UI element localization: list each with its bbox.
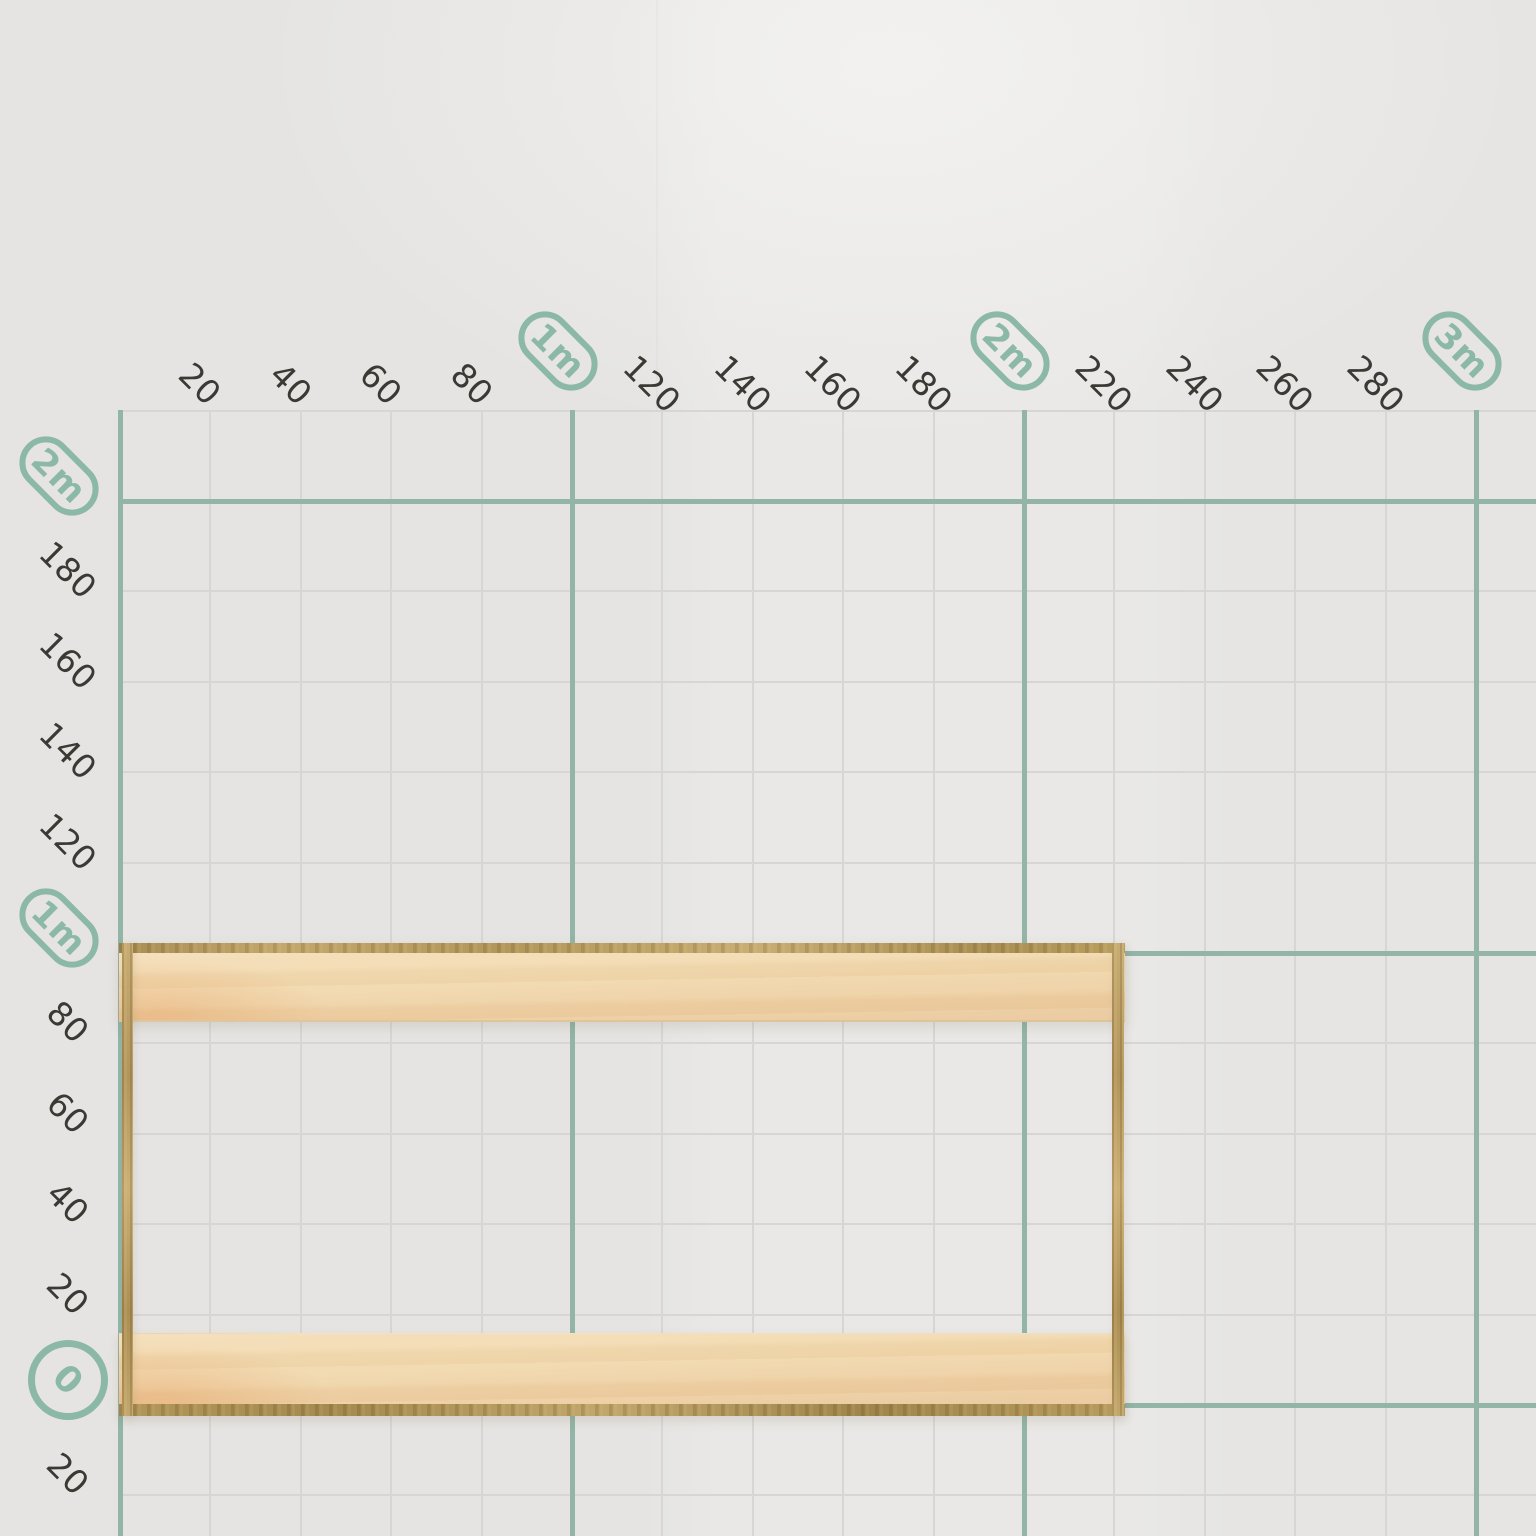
top-axis-label-300cm: 3m [1411,300,1512,401]
left-axis-label-100cm: 1m [8,877,109,978]
grid-line-y-160cm [120,681,1536,683]
left-axis-label-120cm: 120 [34,807,103,876]
top-axis-label-40cm: 40 [264,357,318,411]
left-axis-label-60cm: 60 [41,1086,95,1140]
top-axis-label-200cm: 2m [959,300,1060,401]
wood-top-plank[interactable] [119,943,1125,1022]
wall-seam [656,0,658,410]
left-axis-label-minus20cm: 20 [41,1448,95,1502]
wood-bottom-plank[interactable] [119,1333,1125,1416]
build-scene: 204060801m1201401601802m2202402602803m2m… [0,0,1536,1536]
grid-line-y-200cm [120,499,1536,504]
left-axis-label-40cm: 40 [41,1176,95,1230]
wood-right-panel[interactable] [1112,943,1124,1416]
top-axis-label-280cm: 280 [1341,350,1410,419]
left-axis-label-140cm: 140 [34,717,103,786]
top-axis-label-140cm: 140 [708,350,777,419]
top-axis-label-240cm: 240 [1160,350,1229,419]
wood-left-panel[interactable] [122,943,133,1416]
wood-top-plank-face [119,953,1125,1022]
top-axis-label-260cm: 260 [1251,350,1320,419]
grid-line-y-120cm [120,862,1536,864]
left-axis-label-80cm: 80 [41,996,95,1050]
top-axis-label-20cm: 20 [174,357,228,411]
grid-line-x-300cm [1474,410,1479,1536]
wood-frame[interactable] [119,943,1125,1416]
wood-bottom-plank-edge [119,1404,1125,1416]
left-axis-label-200cm: 2m [8,425,109,526]
top-axis-label-80cm: 80 [445,357,499,411]
grid-line-y--20cm [120,1494,1536,1496]
left-axis-label-160cm: 160 [34,626,103,695]
left-axis-label-0cm: 0 [11,1323,124,1436]
top-axis-label-220cm: 220 [1070,350,1139,419]
grid-line-y-180cm [120,590,1536,592]
grid-line-y-220cm [120,410,1536,412]
top-axis-label-120cm: 120 [618,350,687,419]
top-axis-label-60cm: 60 [354,357,408,411]
grid-line-y-140cm [120,771,1536,773]
grid-line-x-240cm [1204,410,1206,1536]
top-axis-label-160cm: 160 [799,350,868,419]
top-axis-label-100cm: 1m [507,300,608,401]
grid-line-x-280cm [1385,410,1387,1536]
wood-bottom-plank-face [119,1333,1125,1404]
top-axis-label-180cm: 180 [889,350,958,419]
grid-line-x-260cm [1294,410,1296,1536]
wood-top-plank-edge [119,943,1125,953]
left-axis-label-180cm: 180 [34,536,103,605]
left-axis-label-20cm: 20 [41,1267,95,1321]
